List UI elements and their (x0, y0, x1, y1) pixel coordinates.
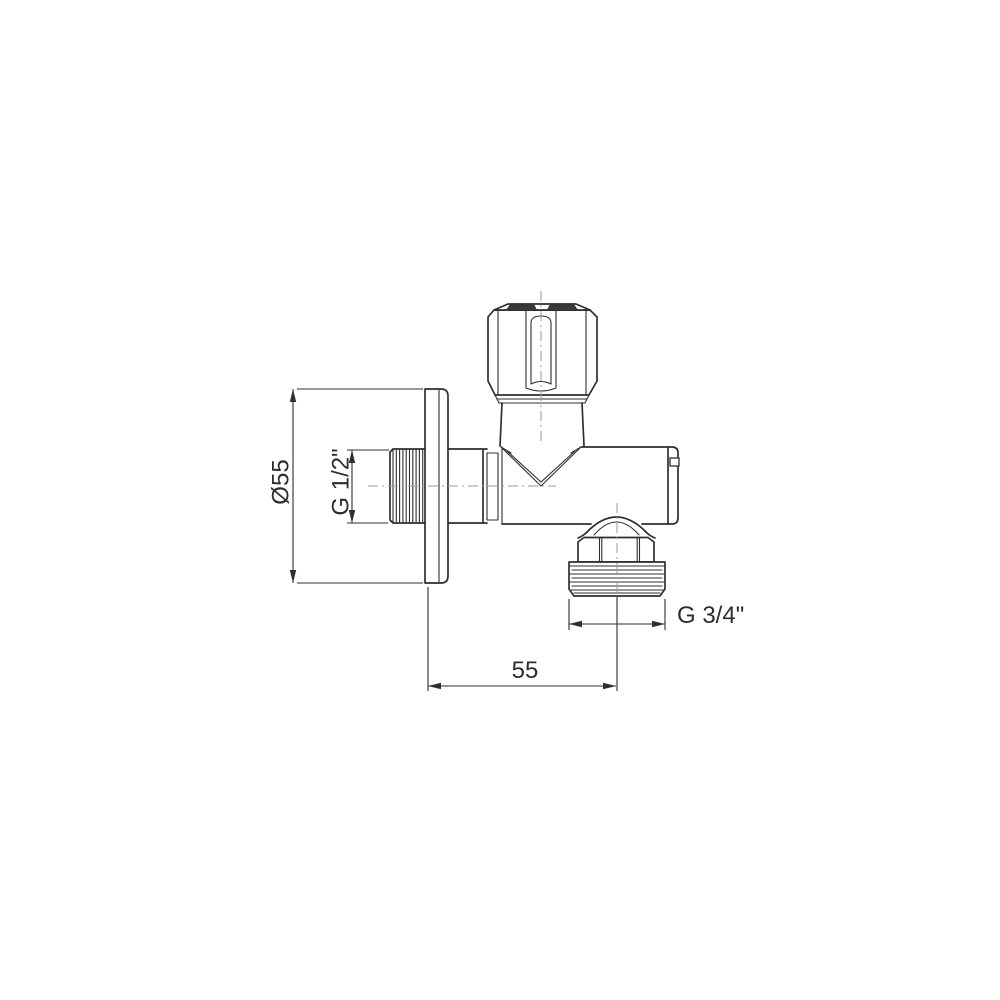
arrow-down (290, 570, 296, 583)
handle-body (488, 310, 597, 395)
nut-outline (578, 538, 654, 563)
valve-neck (500, 403, 584, 486)
arrow-right (652, 621, 665, 627)
body-end-notch (670, 458, 679, 466)
label-flange-diameter: Ø55 (268, 459, 295, 504)
valve-handle (488, 304, 597, 403)
cone-outer (501, 447, 581, 486)
label-wall-to-outlet: 55 (512, 657, 539, 684)
arrow-right (603, 683, 616, 689)
body-outline (502, 447, 668, 524)
arrow-up (290, 389, 296, 402)
arrow-left (428, 683, 441, 689)
handle-knurl-right (548, 305, 578, 310)
dimension-outlet-thread: G 3/4" (569, 599, 744, 630)
label-outlet-thread: G 3/4" (677, 602, 744, 629)
cone-inner (507, 451, 575, 482)
drawing-page: Ø55 G 1/2" G 3/4" 55 (0, 0, 1000, 1000)
ext-lines (297, 389, 423, 583)
dimension-inlet-thread: G 1/2" (328, 448, 390, 523)
handle-knurl-left (507, 305, 537, 310)
dimension-wall-to-outlet: 55 (428, 587, 617, 691)
outlet-hex-nut (578, 538, 654, 563)
arrow-left (569, 621, 582, 627)
cone-corner-ticks (501, 447, 581, 453)
neck-sides (500, 403, 584, 446)
label-inlet-thread: G 1/2" (328, 448, 355, 515)
angle-valve-drawing: Ø55 G 1/2" G 3/4" 55 (0, 0, 1000, 1000)
handle-skirt (495, 395, 589, 403)
